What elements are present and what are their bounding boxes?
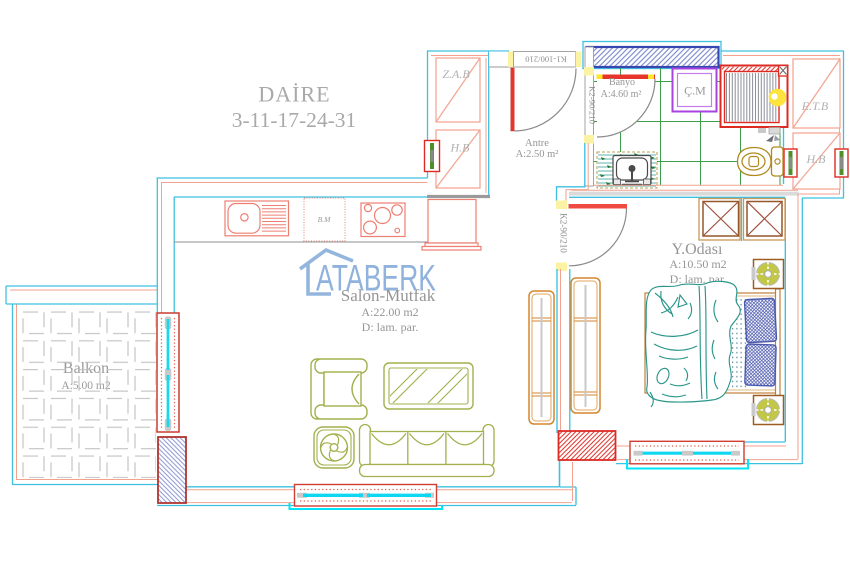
svg-text:A:10.50 m2: A:10.50 m2 <box>669 257 726 271</box>
svg-text:K2-90/210: K2-90/210 <box>588 86 598 125</box>
svg-text:Y.Odası: Y.Odası <box>672 241 723 258</box>
svg-text:Banyo: Banyo <box>609 77 635 88</box>
svg-text:A:4.60 m²: A:4.60 m² <box>601 89 642 100</box>
svg-text:D: lam. par.: D: lam. par. <box>362 320 419 334</box>
svg-text:E.T.B: E.T.B <box>801 99 829 113</box>
svg-text:B.M: B.M <box>318 215 331 224</box>
svg-text:K1-100/210: K1-100/210 <box>525 55 567 65</box>
svg-text:Z.A.B: Z.A.B <box>442 67 470 81</box>
svg-text:Salon-Mutfak: Salon-Mutfak <box>341 286 436 305</box>
svg-text:Ç.M: Ç.M <box>684 84 706 98</box>
svg-text:A:22.00 m2: A:22.00 m2 <box>361 305 418 319</box>
svg-text:A:2.50 m²: A:2.50 m² <box>516 149 559 160</box>
svg-text:DAİRE: DAİRE <box>258 82 330 107</box>
svg-text:Antre: Antre <box>525 138 549 149</box>
svg-text:H.B: H.B <box>806 152 827 166</box>
svg-text:K2-90/210: K2-90/210 <box>559 213 569 253</box>
svg-text:H.B: H.B <box>450 141 471 155</box>
svg-text:3-11-17-24-31: 3-11-17-24-31 <box>232 108 357 132</box>
